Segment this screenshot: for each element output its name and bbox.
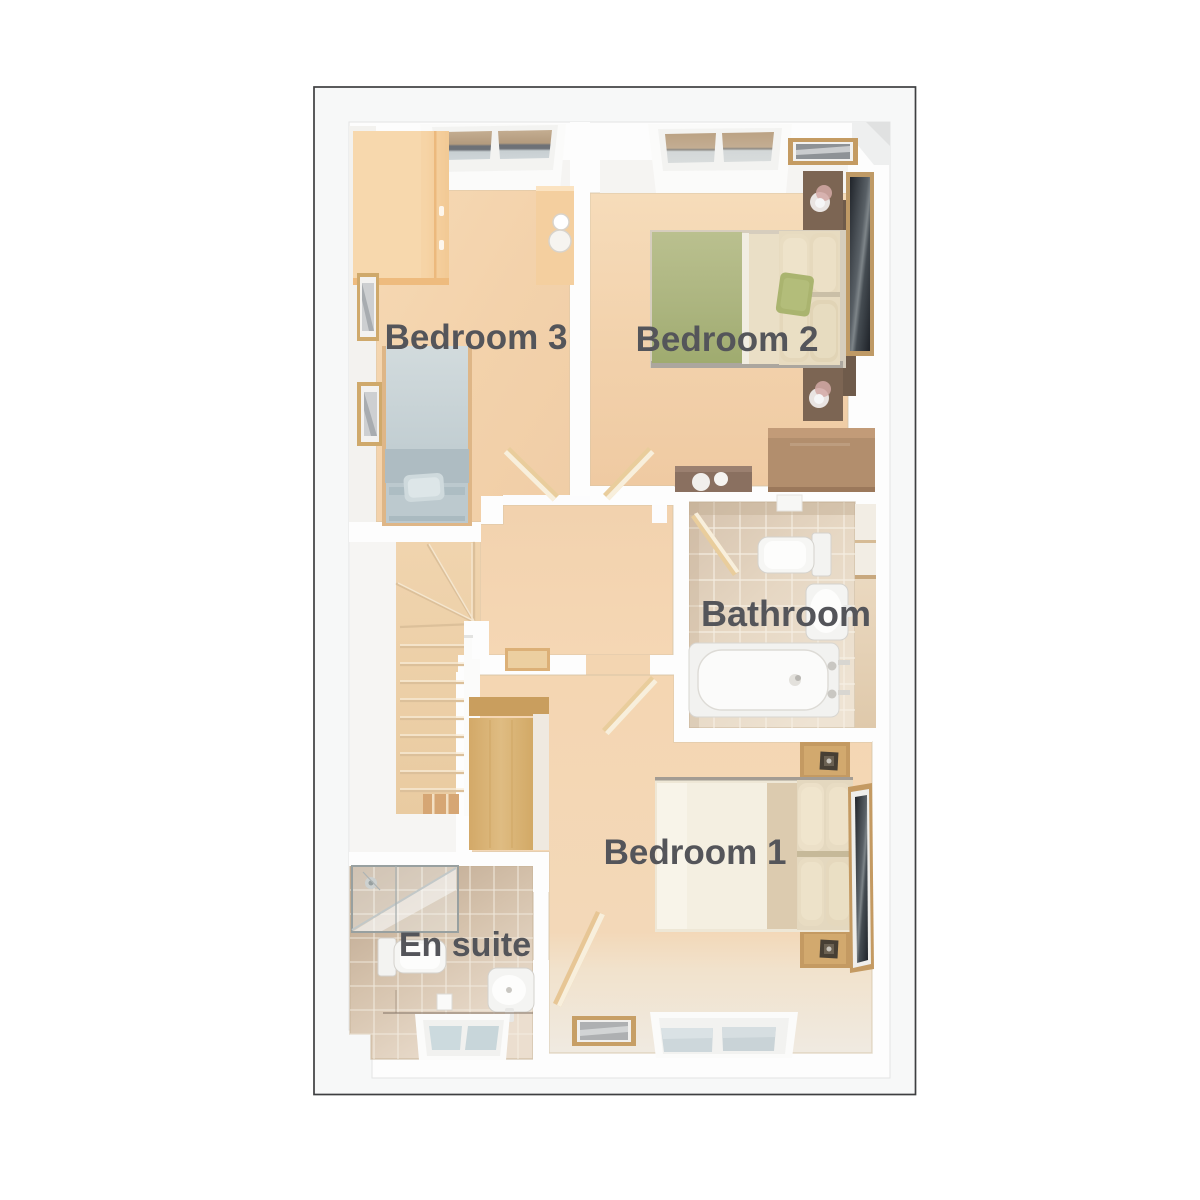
svg-text:Bedroom 1: Bedroom 1 — [604, 833, 787, 872]
svg-text:En suite: En suite — [399, 926, 531, 964]
svg-text:Bedroom 3: Bedroom 3 — [385, 318, 568, 357]
svg-text:Bathroom: Bathroom — [701, 593, 871, 634]
svg-text:Bedroom 2: Bedroom 2 — [636, 320, 819, 359]
